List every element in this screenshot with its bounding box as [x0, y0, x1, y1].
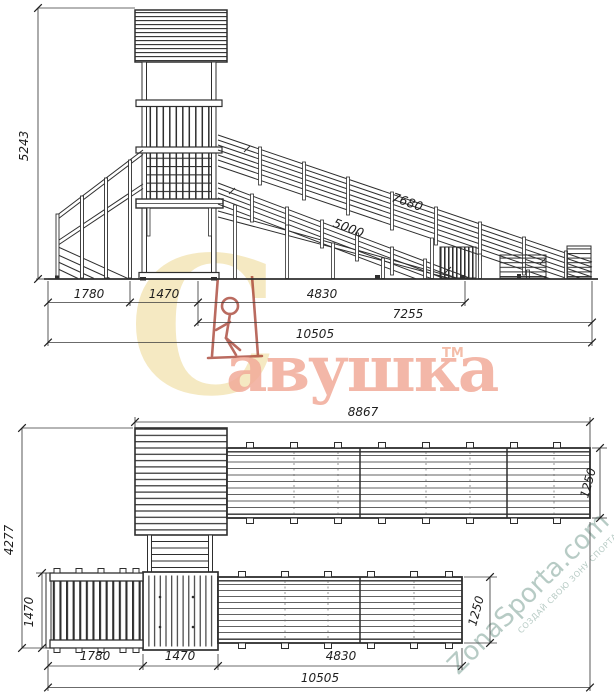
dim-plan-platform-depth: 1470	[22, 596, 36, 627]
dim-plan-ramp-width: 1250	[465, 594, 487, 627]
plan-view: 8867 4277 1470 1250 1250 1780 1470 4830 …	[2, 405, 607, 691]
drawing-canvas: 5243 7680 5000 1780 1470 4830 7255 10505	[0, 0, 614, 700]
tower-roof	[135, 10, 227, 62]
stairs-railing	[55, 150, 143, 279]
dim-seg-tower: 1470	[149, 287, 180, 301]
elevation-view: 5243 7680 5000 1780 1470 4830 7255 10505	[17, 4, 598, 346]
dim-plan-total-span: 10505	[301, 671, 339, 685]
dim-plan-seg-tower: 1470	[165, 649, 196, 663]
ladder-plan	[148, 535, 213, 573]
dim-plan-top-span: 8867	[348, 405, 379, 419]
dim-height-total: 5243	[17, 131, 31, 162]
dim-plan-seg-ramp: 4830	[326, 649, 357, 663]
dim-ramp-span: 7255	[393, 307, 424, 321]
dim-total-span: 10505	[296, 327, 334, 341]
dim-seg-stairs: 1780	[74, 287, 105, 301]
side-platform-plan	[46, 569, 143, 653]
dim-seg-ramp: 4830	[307, 287, 338, 301]
slide-ramp	[218, 135, 592, 300]
technical-drawing-page: С авушка ТМ ZonaSporta.com СОЗДАЙ СВОЮ З…	[0, 0, 614, 700]
dim-plan-height-total: 4277	[2, 524, 16, 555]
roof-plan	[135, 428, 227, 535]
dim-slope-inner: 5000	[331, 215, 366, 240]
tower-structure	[136, 62, 223, 281]
dim-plan-seg-platform: 1780	[80, 649, 111, 663]
tower-base-plan	[143, 572, 218, 650]
bridge-band-plan	[227, 443, 590, 524]
ramp-band-plan	[218, 572, 462, 649]
